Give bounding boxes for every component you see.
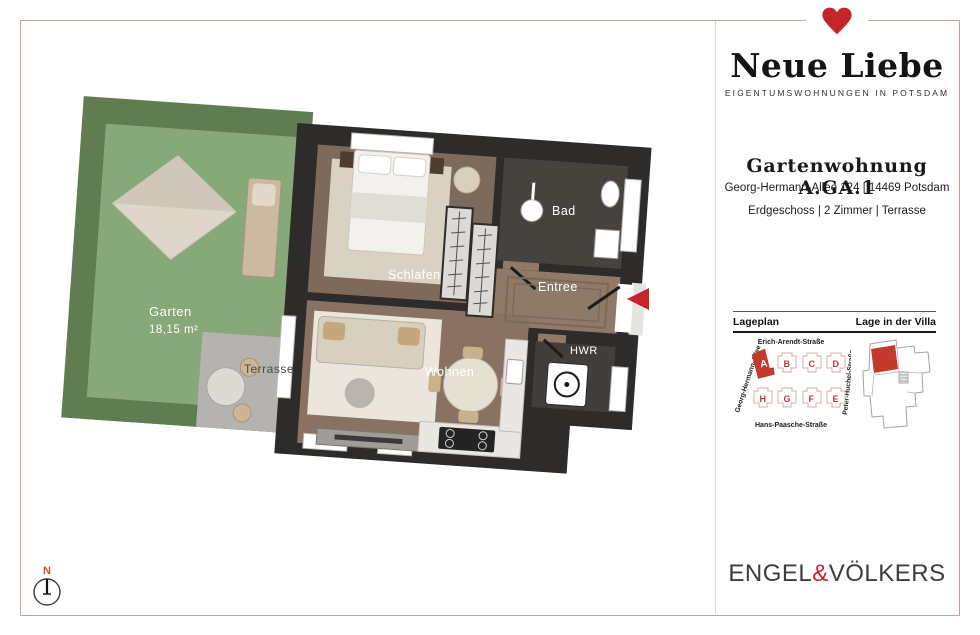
building-b: B [778, 353, 796, 372]
window-hwr [609, 367, 628, 412]
building-g-label: G [784, 394, 791, 404]
lounger-pillow [252, 183, 276, 207]
sofa-pillow [322, 321, 345, 340]
building-c: C [803, 353, 821, 372]
label-garten-area: 18,15 m² [149, 324, 198, 336]
unit-address: Georg-Hermann-Allee 124 | 14469 Potsdam [716, 182, 958, 194]
villa-outline [856, 332, 940, 436]
villa-stairs [899, 372, 908, 383]
street-top: Erich-Arendt-Straße [758, 339, 825, 346]
building-c-label: C [809, 359, 816, 369]
building-h-label: H [760, 394, 767, 404]
building-f: F [803, 388, 821, 407]
unit-details: Erdgeschoss | 2 Zimmer | Terrasse [716, 205, 958, 217]
building-g: G [778, 388, 796, 407]
label-garten: Garten [149, 304, 192, 319]
building-d: D [827, 353, 845, 372]
building-a-label: A [759, 358, 768, 370]
building-f-label: F [809, 394, 815, 404]
nightstand [339, 151, 354, 168]
engel-voelkers-logo: ENGEL&VÖLKERS [716, 560, 958, 588]
floorplan-svg: Garten 18,15 m² Terrasse Schlafen Bad En… [20, 66, 720, 606]
cooktop [438, 427, 495, 453]
building-h: H [754, 388, 772, 407]
pillow [358, 154, 391, 174]
nightstand [429, 157, 444, 174]
siteplan-heading-right: Lage in der Villa [856, 316, 936, 328]
brand-tagline: EIGENTUMSWOHNUNGEN IN POTSDAM [716, 88, 958, 98]
logo-engel: ENGEL [728, 560, 812, 587]
kitchen-sink [506, 359, 524, 384]
logo-ampersand: & [812, 560, 829, 587]
building-b-label: B [784, 359, 791, 369]
label-bad: Bad [552, 204, 576, 218]
logo-voelkers: VÖLKERS [829, 560, 946, 587]
compass-north-label: N [43, 565, 51, 577]
pillow [393, 157, 426, 177]
building-d-label: D [833, 359, 840, 369]
villa-highlight-unit [871, 345, 898, 373]
sofa-pillow [397, 327, 420, 346]
building-e-label: E [833, 394, 839, 404]
label-hwr: HWR [570, 345, 598, 357]
label-wohnen: Wohnen [425, 365, 474, 379]
wardrobe [466, 224, 498, 318]
dining-chair [462, 346, 483, 359]
brand-name: Neue Liebe [716, 46, 958, 85]
label-schlafen: Schlafen [388, 268, 441, 282]
entrance-door-gap [615, 284, 634, 333]
street-bottom: Hans-Paasche-Straße [755, 422, 827, 429]
flyer-page: Garten 18,15 m² Terrasse Schlafen Bad En… [0, 0, 980, 635]
siteplan-heading-left: Lageplan [733, 316, 779, 328]
label-entree: Entree [538, 280, 578, 294]
shower-arm [533, 183, 534, 200]
siteplan-box: Lageplan Lage in der Villa [733, 311, 936, 333]
label-terrasse: Terrasse [244, 362, 294, 376]
siteplan-map: Erich-Arendt-Straße Hans-Paasche-Straße … [731, 333, 851, 435]
dining-chair [458, 410, 479, 423]
compass: N [26, 560, 70, 612]
bed-blanket [350, 192, 428, 223]
heart-icon [821, 6, 853, 36]
bath-sink [594, 229, 620, 259]
